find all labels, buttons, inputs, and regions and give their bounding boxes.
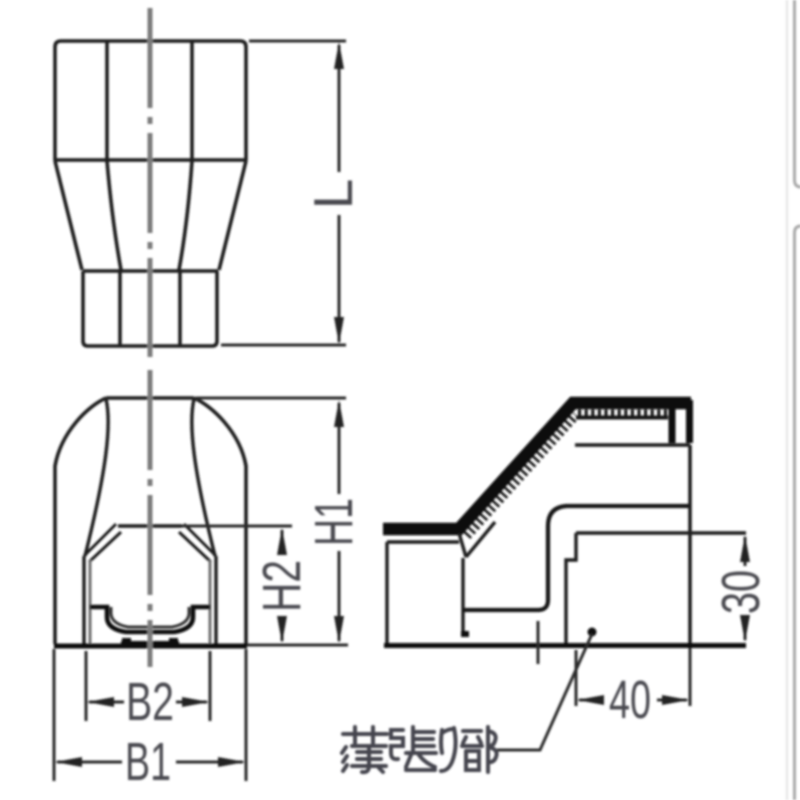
svg-text:40: 40 [609,670,651,730]
svg-text:B2: B2 [126,672,174,732]
svg-text:L: L [302,179,364,210]
svg-text:30: 30 [711,570,771,614]
svg-text:H2: H2 [252,560,312,612]
svg-text:B1: B1 [125,732,171,792]
svg-text:H1: H1 [304,498,364,546]
